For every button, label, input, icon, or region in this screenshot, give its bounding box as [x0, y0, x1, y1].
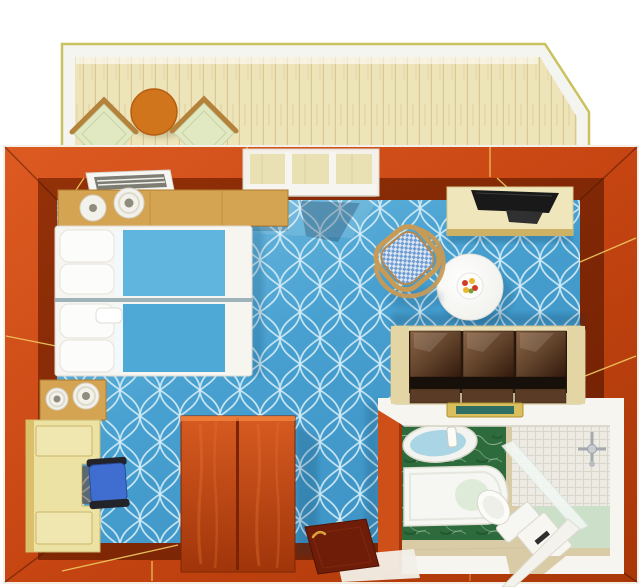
bed-blanket-upper	[121, 230, 225, 296]
table-lamp	[114, 188, 144, 218]
tray-inlay	[456, 406, 514, 414]
window-glass	[250, 154, 372, 184]
balcony-window	[243, 149, 379, 196]
tv-desk	[447, 187, 573, 236]
balcony-round-table	[131, 89, 177, 135]
headboard-console	[58, 188, 288, 231]
table-lamp	[80, 195, 106, 221]
bathroom-left-wall	[378, 402, 402, 572]
twin-beds	[55, 226, 252, 376]
folded-towel	[96, 308, 122, 323]
wardrobe	[181, 416, 295, 572]
bed-blanket-lower	[121, 304, 225, 372]
chair-seat	[89, 463, 128, 503]
desk-chair	[86, 457, 129, 510]
balcony-sunlight	[76, 57, 538, 64]
sofa-seat-shadow	[410, 377, 566, 389]
blanket-fold	[115, 230, 123, 296]
vanity-drawer	[36, 512, 92, 544]
welcome-tray	[447, 403, 523, 417]
chair-shadow	[387, 287, 443, 309]
window-mullion	[329, 152, 336, 186]
sofa	[391, 326, 585, 404]
table-lamp	[73, 383, 99, 409]
floor-plan-canvas	[0, 0, 642, 587]
wardrobe-top-highlight	[181, 416, 295, 421]
sofa-front-cushions	[410, 389, 566, 403]
floor-plan-svg	[0, 0, 642, 587]
bathroom-shadow	[366, 402, 380, 544]
vanity-drawer	[36, 426, 92, 456]
vanity-side	[26, 420, 34, 552]
tv-stand	[506, 210, 543, 224]
sofa-armrest-right	[567, 326, 585, 404]
desk-front-edge	[447, 229, 573, 236]
pillows-upper-bed	[60, 230, 114, 294]
bathroom-right-wall	[610, 398, 624, 574]
fruit-plate	[457, 273, 483, 299]
wardrobe-door-split	[236, 418, 239, 570]
table-lamp	[46, 388, 68, 410]
soap-dispenser	[447, 427, 458, 448]
sofa-back-cushions	[410, 331, 566, 377]
nightstand	[40, 380, 106, 420]
sofa-armrest-left	[391, 326, 409, 404]
window-mullion	[285, 152, 292, 186]
bed-gap	[55, 298, 252, 302]
